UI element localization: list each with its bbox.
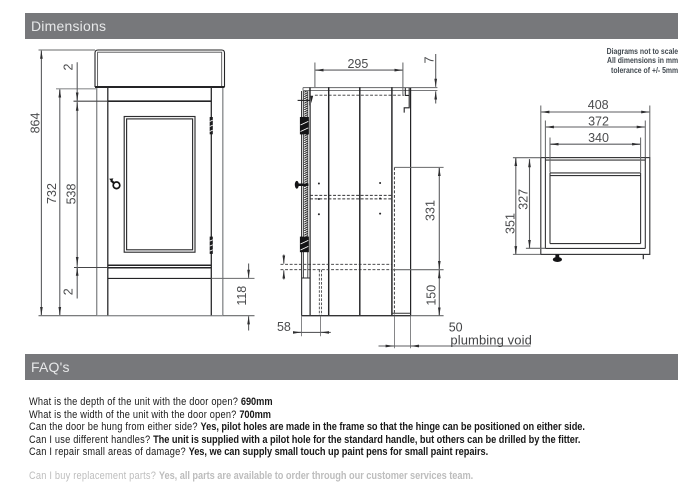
svg-text:864: 864	[29, 113, 43, 134]
svg-text:2: 2	[61, 288, 75, 295]
svg-text:plumbing void: plumbing void	[450, 332, 532, 347]
svg-text:331: 331	[424, 200, 438, 221]
svg-text:351: 351	[504, 213, 518, 234]
svg-text:408: 408	[588, 98, 609, 112]
svg-text:7: 7	[423, 56, 437, 63]
svg-text:538: 538	[64, 184, 78, 205]
svg-text:372: 372	[588, 114, 609, 128]
svg-text:150: 150	[424, 285, 438, 306]
svg-text:732: 732	[45, 183, 59, 204]
svg-text:295: 295	[347, 57, 368, 71]
svg-text:340: 340	[588, 131, 609, 145]
svg-text:327: 327	[516, 189, 530, 210]
svg-text:58: 58	[277, 320, 291, 334]
svg-text:2: 2	[62, 63, 76, 70]
svg-text:118: 118	[235, 286, 249, 306]
